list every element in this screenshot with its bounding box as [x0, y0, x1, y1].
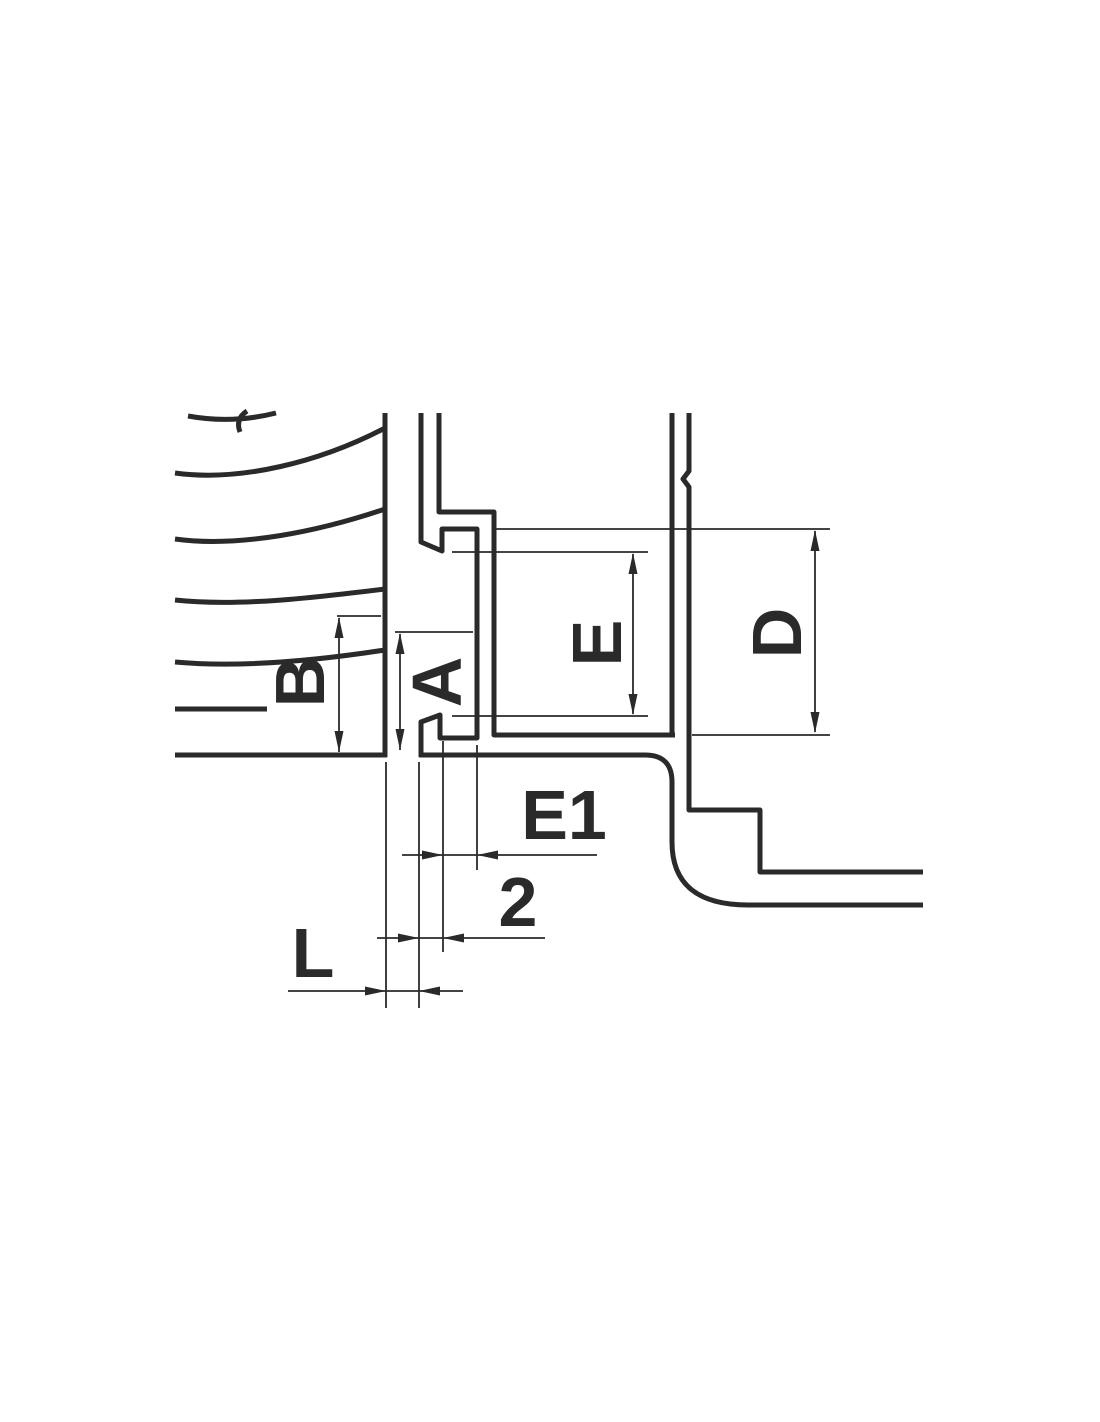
drawing-canvas: B A E D E1 2 L — [0, 0, 1100, 1422]
bell-curve-4 — [175, 589, 385, 602]
bell-curve-3 — [175, 509, 385, 541]
dim-label-d: D — [738, 608, 816, 659]
dim-label-2: 2 — [499, 863, 538, 941]
duct-outer-bend — [419, 755, 923, 905]
dimension-lines — [288, 529, 830, 1008]
dimension-arrowheads — [335, 530, 820, 996]
dim-label-e1: E1 — [521, 776, 607, 854]
dim-label-a: A — [398, 657, 476, 708]
bell-curve-2 — [175, 428, 385, 475]
dim-label-e: E — [558, 620, 636, 667]
dimension-labels: B A E D E1 2 L — [261, 608, 816, 992]
bell-top-arc — [188, 413, 276, 419]
bell-break-curve — [239, 411, 247, 432]
dim-label-b: B — [261, 657, 339, 708]
technical-drawing: B A E D E1 2 L — [0, 0, 1100, 1422]
dim-label-l: L — [292, 914, 335, 992]
